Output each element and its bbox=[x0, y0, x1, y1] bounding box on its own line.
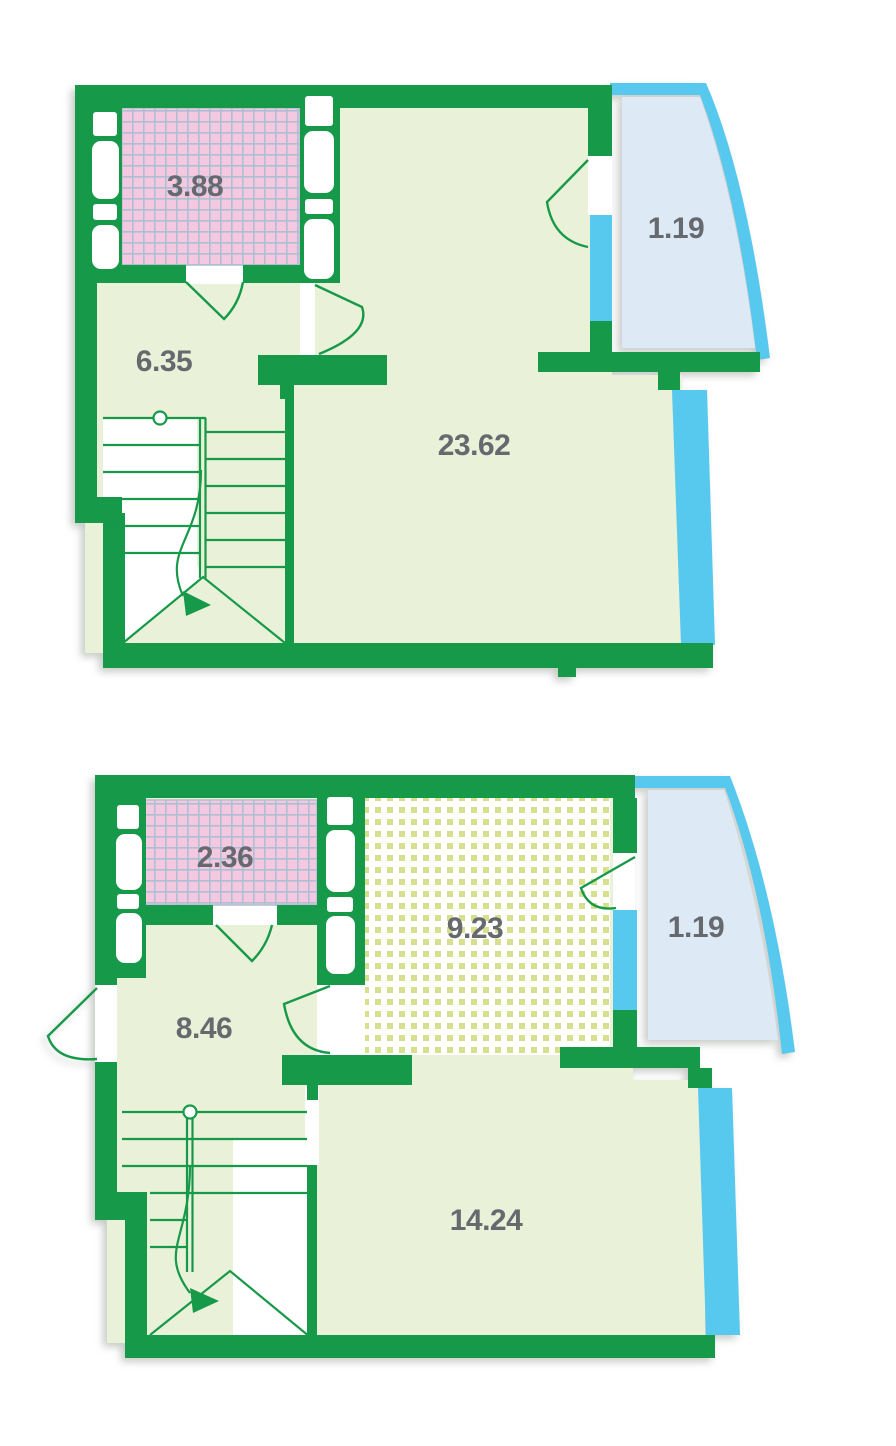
entrance-door-arc bbox=[48, 988, 97, 1059]
lower-stair-cut bbox=[233, 1140, 307, 1335]
upper-living-room-area-label: 23.62 bbox=[438, 429, 511, 463]
lower-balcony-door-window bbox=[613, 910, 637, 1010]
floor-plan-drawing bbox=[0, 0, 896, 1446]
upper-bathroom-area-label: 3.88 bbox=[167, 170, 223, 204]
lower-hallway-area-label: 8.46 bbox=[176, 1012, 232, 1046]
upper-balcony-door-window bbox=[590, 215, 612, 321]
stair-post bbox=[154, 412, 167, 425]
lower-plan bbox=[48, 775, 795, 1358]
lower-bathroom-area-label: 2.36 bbox=[197, 841, 253, 875]
stair-post bbox=[184, 1106, 197, 1119]
kitchen-area-label: 9.23 bbox=[447, 912, 503, 946]
lower-balcony-area-label: 1.19 bbox=[668, 911, 724, 945]
lower-living-room-area-label: 14.24 bbox=[450, 1204, 523, 1238]
upper-balcony-area-label: 1.19 bbox=[648, 212, 704, 246]
floor-plan-canvas: 3.88 6.35 23.62 1.19 2.36 8.46 9.23 1.19… bbox=[0, 0, 896, 1446]
upper-hallway-area-label: 6.35 bbox=[136, 345, 192, 379]
